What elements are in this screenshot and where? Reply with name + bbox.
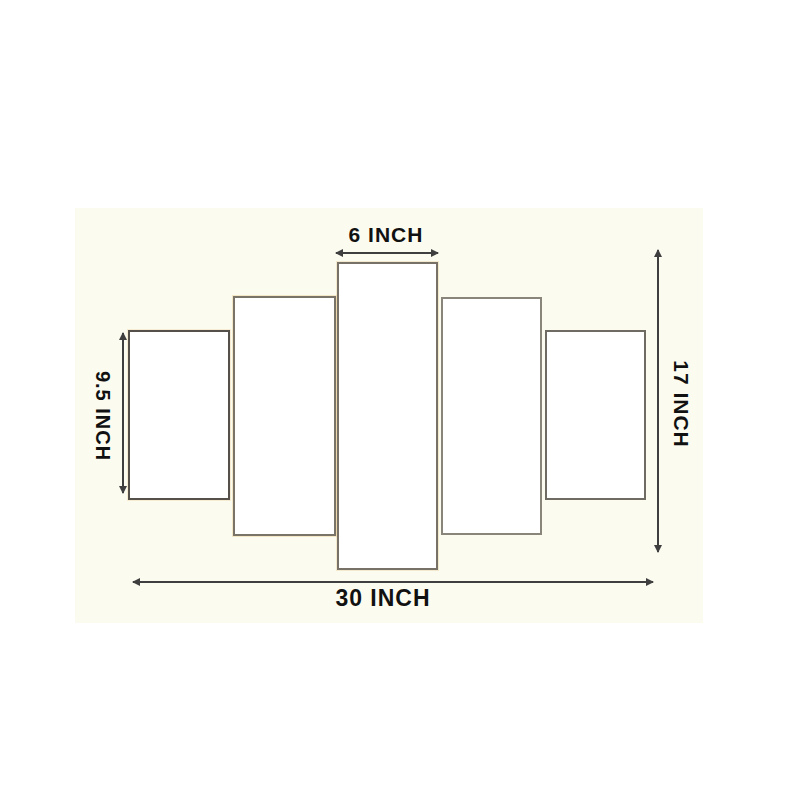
dimension-line-left [122, 333, 124, 493]
arrow-right-icon [646, 578, 654, 586]
dimension-label-total-width: 30 INCH [313, 585, 453, 612]
arrow-down-icon [654, 545, 662, 553]
arrow-down-icon [119, 486, 127, 494]
panel-left-inner [233, 296, 336, 536]
dimension-label-outer-panel-height: 9.5 INCH [90, 366, 116, 466]
arrow-up-icon [119, 332, 127, 340]
panel-center [337, 262, 438, 570]
arrow-right-icon [431, 249, 439, 257]
dimension-label-center-panel-width: 6 INCH [326, 222, 446, 248]
product-dimension-diagram: 6 INCH 9.5 INCH 17 INCH 30 INCH [0, 0, 800, 800]
dimension-line-bottom [133, 581, 653, 583]
panel-left-outer [128, 330, 230, 500]
arrow-left-icon [335, 249, 343, 257]
arrow-up-icon [654, 249, 662, 257]
panel-right-outer [545, 330, 646, 500]
dimension-line-right [657, 250, 659, 552]
dimension-line-top [336, 252, 438, 254]
panel-right-inner [441, 297, 542, 535]
arrow-left-icon [132, 578, 140, 586]
dimension-label-total-height: 17 INCH [668, 354, 694, 454]
